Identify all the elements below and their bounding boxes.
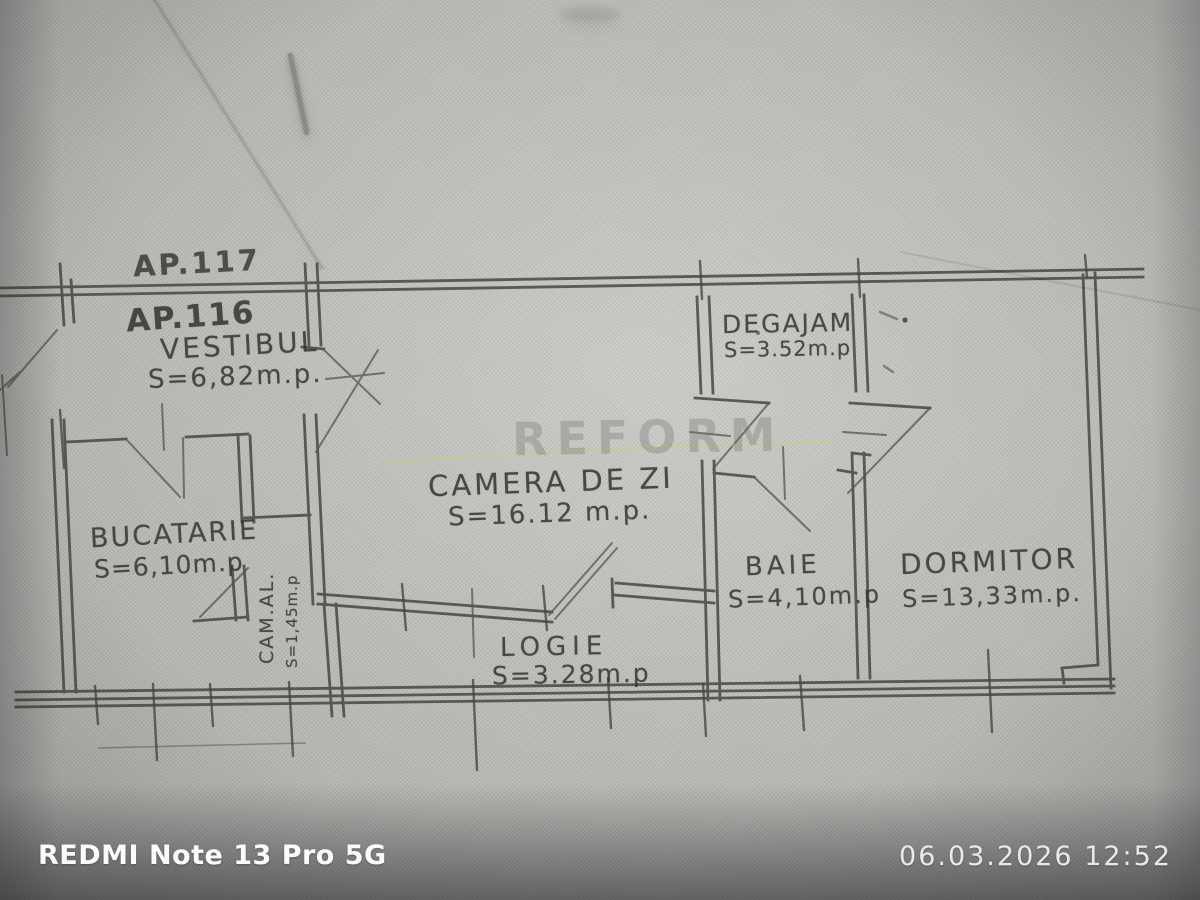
timestamp-watermark: 06.03.2026 12:52 [899,843,1172,870]
room-area-camera-de-zi: S=16.12 m.p. [448,497,652,530]
paper-smudge [560,6,620,22]
room-area-logie: S=3.28m.p [492,661,651,689]
room-label-degajament: DEGAJAM [722,310,854,337]
dimension-line [98,743,306,748]
photo-of-floor-plan: AP.117 AP.116 VESTIBUL S=6,82m.p. DEGAJA… [0,0,1200,900]
overlapping-paper-sheet [0,0,1200,260]
room-area-vestibul: S=6,82m.p. [148,361,323,393]
paper-fold-crease [146,0,327,274]
room-area-degajament: S=3.52m.p [724,338,852,361]
camera-model-watermark: REDMI Note 13 Pro 5G [38,842,387,869]
reform-stamp-watermark: REFORM [512,412,785,463]
room-area-dormitor: S=13,33m.p. [902,581,1083,611]
room-label-logie: LOGIE [500,633,609,661]
paper-speck [902,317,907,322]
room-label-camara-alimente: CAM.AL. [258,572,277,664]
room-label-dormitor: DORMITOR [900,545,1079,579]
room-label-baie: BAIE [745,552,822,581]
room-area-camara-alimente: S=1,45m.p [285,575,300,668]
room-area-baie: S=4,10m.p [728,582,882,611]
room-label-vestibul: VESTIBUL [159,328,320,364]
paper-fold-mark [287,52,309,135]
pencil-scribbles [880,312,897,372]
room-area-bucatarie: S=6,10m.p [93,549,244,582]
